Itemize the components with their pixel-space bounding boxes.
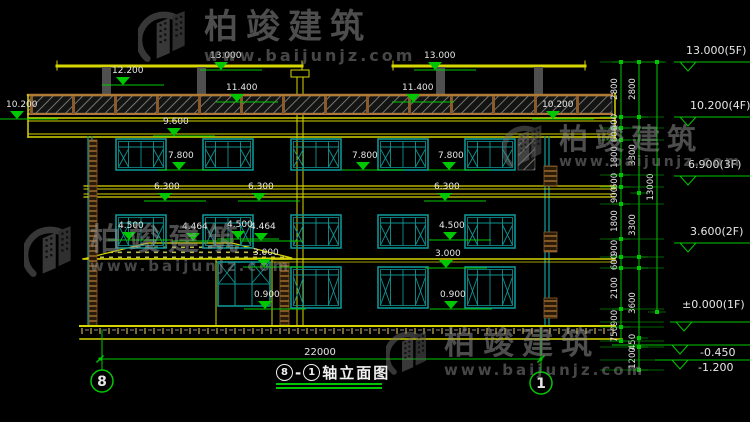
floor-level-triangle-icon [672, 360, 688, 369]
elevation-label: 4.500 [439, 221, 465, 231]
parapet-post [450, 96, 453, 114]
axis-bubble-right: 1 [536, 376, 546, 392]
elevation-marker-triangle-icon [167, 128, 181, 136]
elevation-marker-triangle-icon [231, 231, 245, 239]
elevation-marker-triangle-icon [444, 301, 458, 309]
cad-elevation-canvas: 8 1 22000 13.00013.00012.20011.40011.400… [0, 0, 750, 422]
floor-level-triangle-icon [676, 322, 692, 331]
elevation-marker-triangle-icon [356, 162, 370, 170]
elevation-label: 0.900 [440, 290, 466, 300]
drawing-title: 8 - 1 轴立面图 [276, 362, 390, 383]
dimension-label: 1800 [610, 210, 620, 232]
elevation-label: 4.500 [118, 221, 144, 231]
elevation-label: 9.600 [163, 117, 189, 127]
floor-level-triangle-icon [680, 243, 696, 252]
elevation-label: 7.800 [168, 151, 194, 161]
floor-level-triangle-icon [680, 62, 696, 71]
floor-level-label: ±0.000(1F) [682, 298, 745, 311]
elevation-marker-triangle-icon [439, 260, 453, 268]
dimension-label: 3600 [628, 292, 638, 314]
elevation-label: 0.900 [254, 290, 280, 300]
dimension-label: 3300 [628, 214, 638, 236]
parapet-post [576, 96, 579, 114]
elevation-drawing: 8 1 22000 13.00013.00012.20011.40011.400… [0, 0, 750, 422]
parapet-post [114, 96, 117, 114]
dimension-label: 600 [610, 173, 620, 189]
elevation-marker-triangle-icon [186, 233, 200, 241]
parapet-post [156, 96, 159, 114]
parapet-post [324, 96, 327, 114]
elevation-label: 6.300 [154, 182, 180, 192]
elevation-label: 13.000 [424, 51, 456, 61]
elevation-marker-triangle-icon [172, 162, 186, 170]
dimension-label: 900 [610, 240, 620, 256]
elevation-marker-triangle-icon [442, 162, 456, 170]
dimension-label: 600 [610, 126, 620, 142]
title-name: 轴立面图 [322, 362, 390, 383]
parapet-post [366, 96, 369, 114]
dimension-label: 1800 [610, 146, 620, 168]
parapet-post [492, 96, 495, 114]
elevation-marker-triangle-icon [116, 77, 130, 85]
elevation-marker-triangle-icon [443, 232, 457, 240]
dimension-label: 1200 [628, 347, 638, 369]
elevation-label: 11.400 [226, 83, 258, 93]
elevation-label: 11.400 [402, 83, 434, 93]
parapet-post [282, 96, 285, 114]
floor-level-label: -0.450 [700, 346, 735, 359]
floor-level-label: 3.600(2F) [690, 225, 743, 238]
elevation-label: 12.200 [112, 66, 144, 76]
parapet-post [534, 96, 537, 114]
parapet-post [198, 96, 201, 114]
elevation-label: 10.200 [6, 100, 38, 110]
floor-level-label: -1.200 [698, 361, 733, 374]
dimension-label: 900 [610, 187, 620, 203]
elevation-label: 4.464 [182, 222, 208, 232]
elevation-label: 6.300 [434, 182, 460, 192]
floor-level-label: 13.000(5F) [686, 44, 746, 57]
dimension-label: 2100 [610, 277, 620, 299]
floor-level-label: 10.200(4F) [690, 99, 750, 112]
dimension-label: 600 [610, 254, 620, 270]
parapet-post [72, 96, 75, 114]
parapet-post [240, 96, 243, 114]
elevation-label: 7.800 [438, 151, 464, 161]
title-axis-start: 8 [276, 364, 293, 381]
elevation-label: 10.200 [542, 100, 574, 110]
elevation-marker-triangle-icon [254, 233, 268, 241]
dimension-label: 900 [610, 310, 620, 326]
elevation-label: 3.000 [435, 249, 461, 259]
elevation-label: 13.000 [210, 51, 242, 61]
floor-level-label: 6.900(3F) [688, 158, 741, 171]
title-underline [276, 383, 382, 391]
overall-dimension-label: 22000 [304, 347, 336, 358]
title-axis-end: 1 [303, 364, 320, 381]
elevation-label: 6.300 [248, 182, 274, 192]
floor-level-triangle-icon [680, 176, 696, 185]
elevation-label: 3.000 [253, 248, 279, 258]
floor-level-triangle-icon [672, 345, 688, 354]
title-dash: - [295, 364, 301, 382]
elevation-label: 4.464 [250, 222, 276, 232]
dimension-label: 2800 [628, 78, 638, 100]
dimension-label: 750 [610, 326, 620, 342]
elevation-label: 7.800 [352, 151, 378, 161]
floor-level-triangle-icon [680, 117, 696, 126]
dimension-label: 2800 [610, 78, 620, 100]
dimension-label: 3300 [628, 144, 638, 166]
axis-bubble-left: 8 [97, 374, 107, 390]
elevation-marker-triangle-icon [10, 111, 24, 119]
